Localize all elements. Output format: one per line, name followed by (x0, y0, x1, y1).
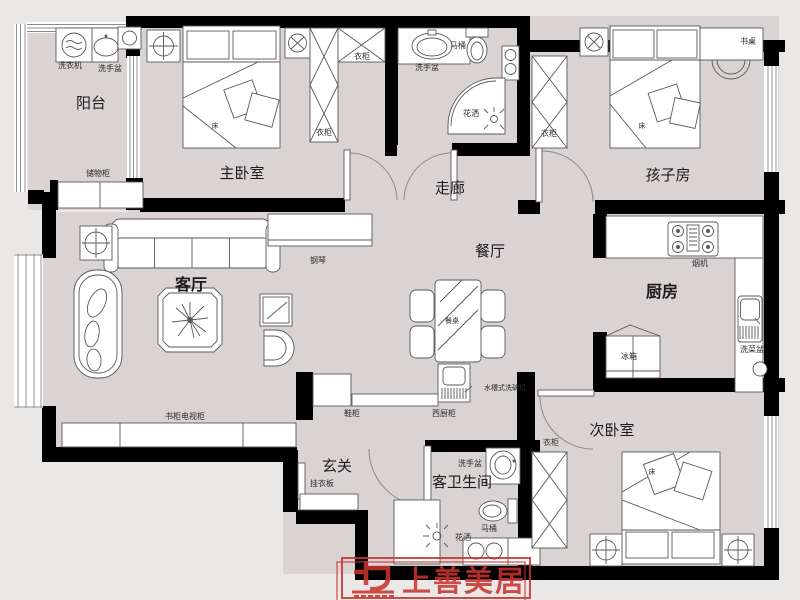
balcony-outer-window-left (14, 24, 27, 192)
label-balcony: 阳台 (76, 94, 106, 112)
label-range-hood: 烟机 (692, 258, 708, 268)
kids-shaft (580, 28, 608, 56)
shoe-cabinet (313, 374, 351, 406)
label-desk: 书桌 (740, 36, 756, 46)
label-guest-bathroom: 客卫生间 (432, 473, 492, 491)
label-kids-room: 孩子房 (645, 166, 690, 184)
guest-shower-tray (394, 500, 440, 564)
label-wardrobe-col: 衣柜 (316, 127, 332, 137)
label-vegetable-sink: 洗菜盆 (740, 344, 764, 354)
gas-meter-icon (753, 362, 767, 376)
floorplan-drawing: 阳台 主卧室 走廊 孩子房 客厅 餐厅 厨房 玄关 客卫生间 次卧室 洗衣机 洗… (0, 0, 800, 600)
master-nightstand (147, 30, 180, 62)
balcony-wash-basin (92, 28, 118, 62)
label-master-bed: 床 (212, 121, 219, 130)
label-guest-toilet: 马桶 (481, 523, 497, 533)
label-corridor: 走廊 (435, 179, 465, 197)
coffee-table (158, 288, 222, 352)
balcony-corner-cabinet (118, 27, 141, 49)
label-entry: 玄关 (322, 457, 352, 475)
label-second-bed: 床 (649, 467, 656, 476)
sofa (104, 219, 280, 272)
floorplan-canvas: 阳台 主卧室 走廊 孩子房 客厅 餐厅 厨房 玄关 客卫生间 次卧室 洗衣机 洗… (0, 0, 800, 600)
label-balcony-basin: 洗手盆 (98, 63, 122, 73)
stove (668, 222, 718, 256)
sink-dishwasher-unit (438, 364, 472, 402)
label-shoe-cabinet: 鞋柜 (344, 408, 360, 418)
storage-cabinet (58, 182, 143, 208)
washing-machine (56, 28, 92, 62)
second-bed (622, 452, 720, 564)
tv-bookcase-row (62, 423, 296, 447)
label-washing-machine: 洗衣机 (58, 60, 82, 70)
label-guest-shower: 花洒 (455, 532, 471, 542)
hall-cabinet (300, 494, 358, 510)
living-room-bay-window (14, 254, 43, 408)
label-kitchen: 厨房 (646, 282, 678, 301)
label-piano: 钢琴 (310, 255, 326, 265)
second-bedroom-window (764, 416, 778, 528)
label-main-basin: 洗手盆 (415, 62, 439, 72)
label-second-bedroom: 次卧室 (589, 421, 634, 439)
brand-name: 上善美居 (402, 564, 526, 598)
label-storage-cabinet: 储物柜 (86, 168, 110, 178)
label-main-toilet: 马桶 (450, 40, 466, 50)
label-living-room: 客厅 (175, 275, 207, 294)
brand-logo: 上善美居 (337, 558, 530, 600)
label-sink-dishwasher: 水槽式洗碗机 (484, 383, 526, 392)
label-master-bedroom: 主卧室 (219, 164, 264, 182)
balcony-inner-window (127, 56, 140, 178)
master-wardrobe-column (310, 28, 338, 142)
chaise-lounge (74, 270, 122, 378)
master-shaft (285, 28, 310, 58)
label-dining-room: 餐厅 (475, 242, 505, 260)
piano (268, 214, 372, 246)
label-second-wardrobe: 衣柜 (543, 437, 559, 447)
label-west-kitchen-cabinet: 西厨柜 (432, 408, 456, 418)
label-wardrobe-top: 衣柜 (354, 51, 370, 61)
master-bed (183, 26, 280, 148)
kitchen-sink (738, 296, 762, 342)
kids-bed (610, 26, 700, 148)
label-main-shower: 花洒 (463, 108, 479, 118)
label-guest-basin: 洗手盆 (458, 458, 482, 468)
second-wardrobe (532, 452, 567, 548)
main-bath-toilet (466, 28, 488, 63)
label-fridge: 冰箱 (621, 351, 637, 361)
guest-toilet (479, 499, 517, 523)
main-bath-double-sink (502, 46, 519, 80)
guest-washer (463, 538, 540, 565)
label-tv-bookcase: 书柜电视柜 (165, 411, 205, 421)
tv-panel (260, 294, 292, 326)
label-coat-board: 挂衣板 (310, 478, 334, 488)
second-nightstand-right (722, 534, 754, 566)
label-dining-table: 餐桌 (445, 316, 459, 325)
west-kitchen-cabinet-row (352, 394, 438, 406)
side-table (80, 226, 112, 260)
kids-room-window (764, 66, 778, 172)
second-nightstand-left (590, 534, 622, 566)
label-kids-wardrobe: 衣柜 (541, 128, 557, 138)
label-kids-bed: 床 (639, 121, 646, 130)
